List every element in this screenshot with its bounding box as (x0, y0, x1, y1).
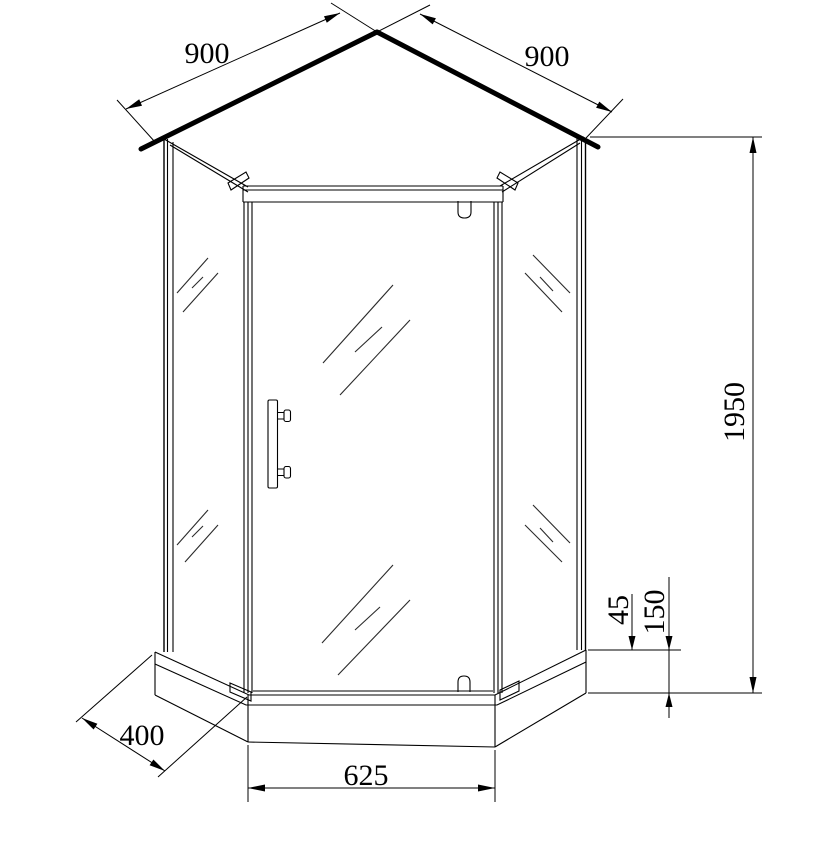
door-glass-shine (322, 285, 410, 675)
tray-front-bottom-edge (248, 742, 495, 747)
dim-label-900-left: 900 (185, 37, 230, 70)
tray-rim-top-edge (155, 650, 586, 695)
right-panel-foot-bracket (500, 681, 519, 700)
dim-label-45: 45 (602, 595, 635, 625)
right-panel-glass-shine (525, 255, 570, 562)
right-corner-post (577, 136, 586, 650)
tray-right-bottom-edge (495, 693, 586, 747)
shower-tray (155, 650, 586, 747)
left-panel-glass-shine (177, 258, 218, 562)
tray-left-bottom-edge (155, 695, 248, 742)
dim-label-400: 400 (120, 719, 165, 752)
door-handle (268, 400, 291, 488)
dim-label-900-right: 900 (525, 40, 570, 73)
dim-label-150: 150 (638, 590, 671, 635)
diagram-canvas: 900 900 1950 45 150 400 (0, 0, 828, 841)
bottom-hinge (458, 676, 470, 692)
dim-label-1950: 1950 (718, 382, 751, 442)
shower-enclosure-diagram: 900 900 1950 45 150 400 (0, 0, 828, 841)
dim-label-625: 625 (344, 759, 389, 792)
door-left-post (244, 202, 252, 693)
door-right-post (494, 202, 502, 693)
dimension-900-right: 900 (377, 5, 623, 138)
left-corner-post (164, 138, 173, 652)
dimension-625-front: 625 (248, 745, 495, 802)
right-panel-top-edge (500, 137, 584, 192)
dimension-150-tray-height: 150 (638, 577, 673, 718)
tray-rim-bottom-edge (155, 662, 586, 705)
left-panel-top-edge (164, 139, 248, 192)
dimension-900-left: 900 (117, 3, 377, 142)
top-hinge (458, 201, 471, 218)
dimension-400-side: 400 (76, 655, 247, 777)
top-rail (228, 172, 518, 202)
